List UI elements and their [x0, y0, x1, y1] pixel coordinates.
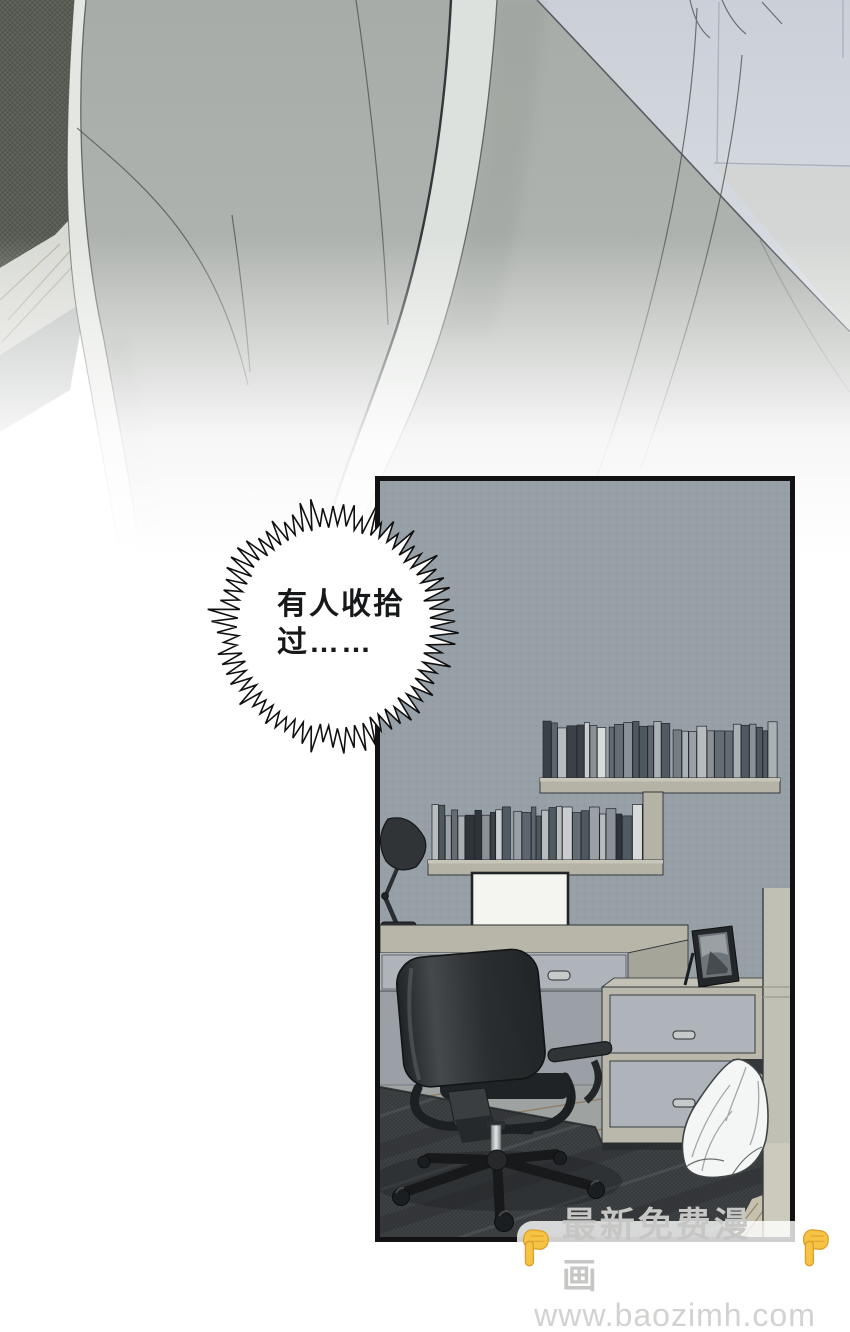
- bookshelf-upper: [540, 721, 780, 793]
- cabinet-handle-top: [673, 1031, 695, 1039]
- watermark-title: 最新免费漫画: [562, 1197, 788, 1299]
- pointing-down-icon: [517, 1228, 553, 1268]
- bed-side-panel: [763, 888, 790, 1237]
- desk-drawer-handle: [548, 971, 570, 980]
- watermark-url: www.baozimh.com: [534, 1297, 816, 1332]
- speech-line-1: 有人收拾: [277, 586, 417, 624]
- pointing-down-icon: [797, 1228, 833, 1268]
- comic-page: { "speech_bubble": { "line1": "有人收拾", "l…: [0, 0, 850, 1332]
- cabinet-handle-bottom: [673, 1099, 695, 1107]
- books: [543, 721, 777, 778]
- watermark: 最新免费漫画 www.baozimh.com: [517, 1221, 833, 1310]
- speech-bubble-text: 有人收拾 过……: [277, 586, 417, 662]
- speech-line-2: 过……: [277, 624, 417, 662]
